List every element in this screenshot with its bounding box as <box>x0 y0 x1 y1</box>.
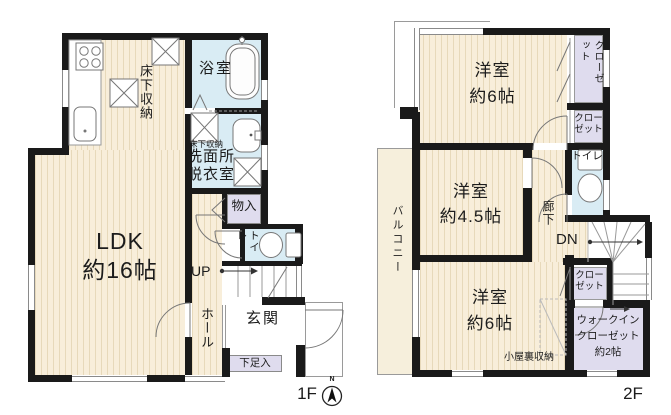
ldk-label: LDK 約16帖 <box>45 227 195 285</box>
closet-1f-label: 物入 <box>228 199 260 214</box>
hall-label: ホール <box>197 307 214 367</box>
closet-top-label: クローゼット <box>572 40 604 86</box>
compass-n-label: N <box>327 376 337 384</box>
entrance-door-arc <box>305 310 343 348</box>
toilet-2f-label: トイレ <box>569 150 605 162</box>
compass-icon <box>323 387 342 406</box>
entrance-label: 玄関 <box>240 310 286 328</box>
dn-label: DN <box>556 231 588 249</box>
wic-label: ウォークイン クローゼット 約2帖 <box>568 313 648 360</box>
bedroom45-door-arc <box>532 158 562 188</box>
floor-2f-label: 2F <box>616 384 650 404</box>
stairs-1f <box>220 266 287 298</box>
closet-fold-doors-2f <box>557 38 570 300</box>
closet-mid-label: クロー ゼット <box>571 113 606 135</box>
bedroom6-bottom-label: 洋室 約6帖 <box>425 285 555 336</box>
up-label: UP <box>191 263 221 280</box>
attic-storage-label: 小屋裏収納 <box>488 352 570 364</box>
balcony-label: バルコニー <box>384 205 403 315</box>
floor-1f-label: 1F <box>291 384 323 404</box>
closet-small-label: クロー ゼット <box>571 270 608 292</box>
bedroom6-top-door-arc <box>533 116 567 150</box>
stairs-2f <box>588 222 649 312</box>
toilet-icon-1f <box>260 233 302 258</box>
bedroom6-top-label: 洋室 約6帖 <box>430 58 555 109</box>
toilet-1f-label: トイレ <box>246 230 260 262</box>
washroom-label: 洗面所 脱衣室 <box>187 148 249 183</box>
hallway-label: 廊下 <box>538 200 555 240</box>
shoe-box-label: 下足入 <box>230 357 280 369</box>
floor-plan: LDK 約16帖 床下収納 浴室 床下収納 洗面所 脱衣室 物入 トイレ UP … <box>0 0 671 415</box>
washroom-door-arc <box>196 215 225 244</box>
bedroom45-label: 洋室 約4.5帖 <box>415 180 527 229</box>
ldk-door-arc <box>156 303 190 337</box>
stove-icon <box>76 43 103 70</box>
underfloor-storage-label: 床下収納 <box>135 64 153 134</box>
bath-label: 浴室 <box>190 60 242 78</box>
closet-door-marks-1f <box>212 198 225 222</box>
